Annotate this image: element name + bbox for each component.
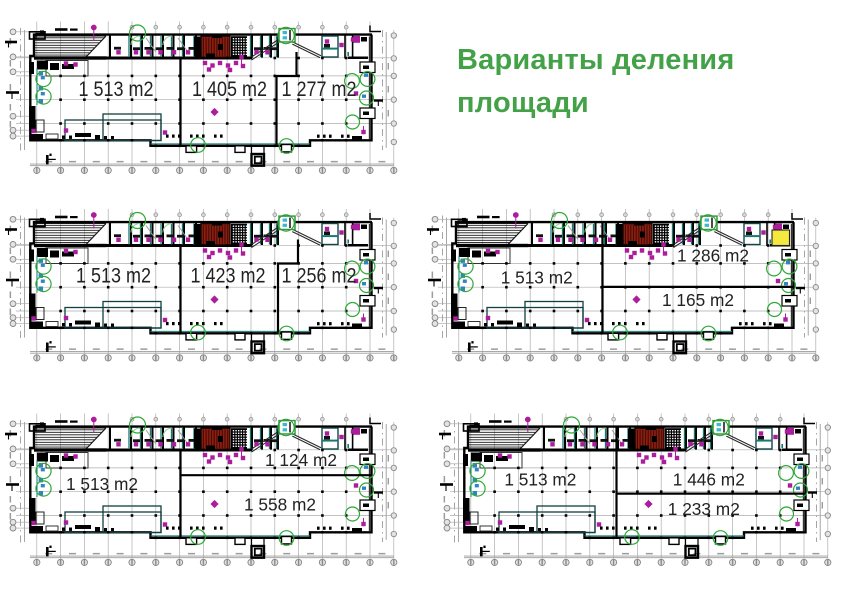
svg-text:1 277 m2: 1 277 m2 bbox=[282, 78, 357, 101]
svg-text:1 446 m2: 1 446 m2 bbox=[673, 470, 745, 490]
svg-text:1 558 m2: 1 558 m2 bbox=[244, 494, 316, 514]
svg-text:1 513 m2: 1 513 m2 bbox=[76, 265, 151, 288]
svg-text:1 233 m2: 1 233 m2 bbox=[668, 499, 740, 519]
svg-text:1 256 m2: 1 256 m2 bbox=[282, 265, 357, 288]
svg-text:1 165 m2: 1 165 m2 bbox=[662, 290, 734, 310]
svg-text:1 513 m2: 1 513 m2 bbox=[501, 268, 573, 288]
svg-text:1 513 m2: 1 513 m2 bbox=[504, 470, 576, 490]
svg-text:1 286 m2: 1 286 m2 bbox=[677, 245, 749, 265]
svg-text:1 513 m2: 1 513 m2 bbox=[66, 474, 138, 494]
svg-text:1 124 m2: 1 124 m2 bbox=[265, 450, 337, 470]
svg-text:1 405 m2: 1 405 m2 bbox=[192, 78, 267, 101]
svg-text:1 423 m2: 1 423 m2 bbox=[191, 265, 266, 288]
svg-text:1 513 m2: 1 513 m2 bbox=[79, 78, 154, 101]
